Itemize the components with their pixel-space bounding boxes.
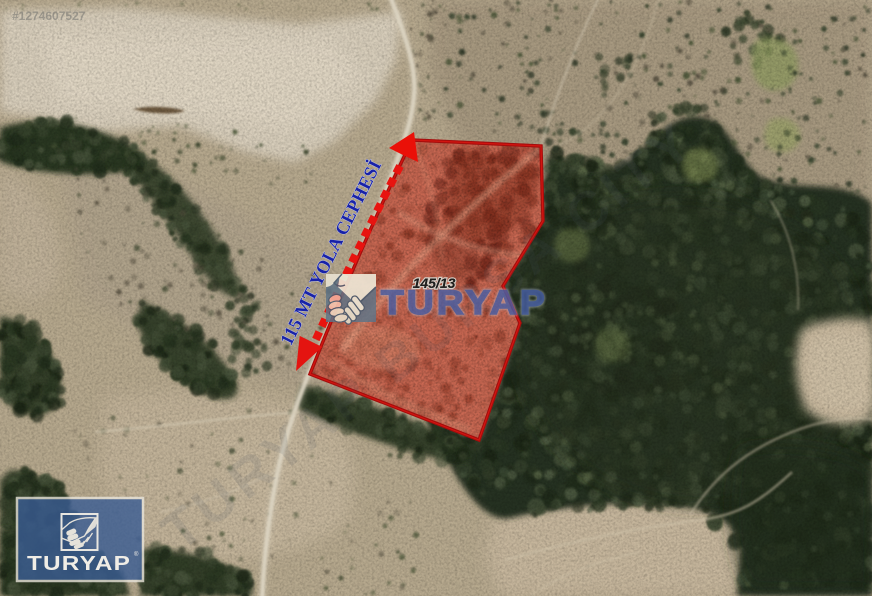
svg-text:TURYAP: TURYAP (381, 284, 548, 322)
svg-text:#1274607527: #1274607527 (12, 9, 86, 23)
svg-text:®: ® (134, 551, 139, 558)
svg-text:TURYAP: TURYAP (27, 552, 131, 575)
